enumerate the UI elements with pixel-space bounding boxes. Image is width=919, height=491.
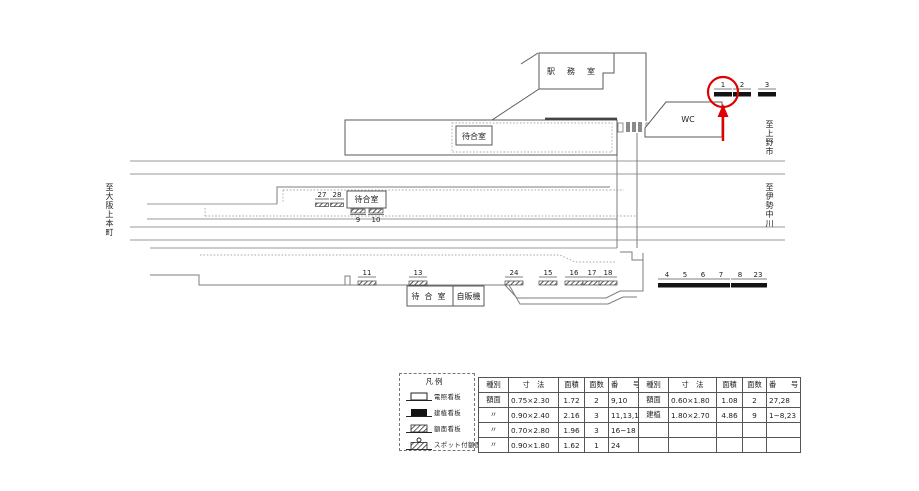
sign-23: 23 [749, 271, 767, 288]
table-row: 〃0.70×2.80 1.963 16~18 [479, 423, 647, 438]
waiting-room-upper-label: 待合室 [462, 131, 486, 141]
sign-5: 5 [676, 271, 694, 288]
vending-machine-label: 自販機 [457, 291, 481, 301]
sign-9: 9 [350, 209, 366, 224]
upper-station-building: 待合室 [345, 119, 617, 155]
signage-table-left: 種別 寸 法 面積 面数 番 号 額面0.75×2.30 1.722 9,10 … [478, 377, 647, 453]
svg-text:28: 28 [333, 191, 342, 199]
table-row: 建植1.80×2.70 4.869 1~8,23 [639, 408, 801, 423]
legend-title: 凡例 [404, 376, 466, 387]
waiting-room-lower-label: 待合室 [412, 291, 451, 301]
track-lines [130, 161, 785, 248]
svg-text:9: 9 [356, 216, 360, 224]
svg-text:1: 1 [721, 81, 725, 89]
wc-label: WC [681, 115, 695, 124]
svg-text:24: 24 [510, 269, 519, 277]
sign-13: 13 [409, 269, 427, 285]
station-office: 駅務室 [492, 53, 646, 121]
direction-label-lower-right: 至伊勢中川 [764, 183, 775, 228]
direction-label-left: 至大阪上本町 [104, 183, 115, 237]
sign-15: 15 [539, 269, 557, 285]
legend-item-spotlit: スポット付額面 [404, 436, 474, 452]
svg-text:11: 11 [363, 269, 372, 277]
direction-label-upper-right: 至上野市 [764, 120, 775, 156]
svg-text:18: 18 [604, 269, 613, 277]
sign-11: 11 [358, 269, 376, 285]
wc-room: WC [645, 102, 722, 137]
svg-text:23: 23 [754, 271, 763, 279]
table-row: 〃0.90×1.80 1.621 24 [479, 438, 647, 453]
station-layout-drawing: 駅務室 待合室 WC 待合室 待合室 自販機 [0, 0, 919, 491]
waiting-room-lower: 待合室 自販機 [407, 286, 484, 306]
legend-item-illuminated: 電照看板 [404, 388, 474, 404]
svg-text:10: 10 [372, 216, 381, 224]
sign-8: 8 [731, 271, 749, 288]
svg-text:27: 27 [318, 191, 327, 199]
svg-text:3: 3 [765, 81, 769, 89]
svg-text:15: 15 [544, 269, 553, 277]
faceplate-sign-icon [404, 421, 434, 435]
sign-7: 7 [712, 271, 730, 288]
erected-sign-icon [404, 405, 434, 419]
sign-17: 17 [583, 269, 601, 285]
svg-text:7: 7 [719, 271, 723, 279]
legend-item-faceplate: 額面看板 [404, 420, 474, 436]
sign-24: 24 [505, 269, 523, 285]
table-row: 〃0.90×2.40 2.163 11,13,15 [479, 408, 647, 423]
sign-1: 1 [714, 81, 732, 97]
waiting-room-middle-label: 待合室 [355, 194, 379, 204]
table-row: 額面0.60×1.80 1.082 27,28 [639, 393, 801, 408]
waiting-room-middle: 待合室 [347, 191, 386, 208]
sign-3: 3 [758, 81, 776, 97]
svg-text:8: 8 [738, 271, 742, 279]
svg-text:5: 5 [683, 271, 687, 279]
legend-item-erected: 建植看板 [404, 404, 474, 420]
sign-27: 27 [315, 191, 329, 207]
sign-10: 10 [368, 209, 384, 224]
table-row [639, 423, 801, 438]
spotlit-faceplate-icon [404, 437, 434, 451]
table-row: 額面0.75×2.30 1.722 9,10 [479, 393, 647, 408]
signage-table-right: 種別 寸 法 面積 面数 番 号 額面0.60×1.80 1.082 27,28… [638, 377, 801, 453]
svg-text:13: 13 [414, 269, 423, 277]
sign-16: 16 [565, 269, 583, 285]
svg-text:6: 6 [701, 271, 706, 279]
sign-28: 28 [330, 191, 344, 207]
svg-text:17: 17 [588, 269, 597, 277]
sign-6: 6 [694, 271, 712, 288]
sign-18: 18 [599, 269, 617, 285]
sign-4: 4 [658, 271, 676, 288]
legend: 凡例 電照看板 建植看板 額面看板 [399, 373, 475, 451]
svg-text:4: 4 [665, 271, 670, 279]
station-office-label: 駅務室 [547, 66, 607, 76]
svg-text:2: 2 [740, 81, 744, 89]
table-row [639, 438, 801, 453]
svg-text:16: 16 [570, 269, 579, 277]
illuminated-sign-icon [404, 389, 434, 403]
